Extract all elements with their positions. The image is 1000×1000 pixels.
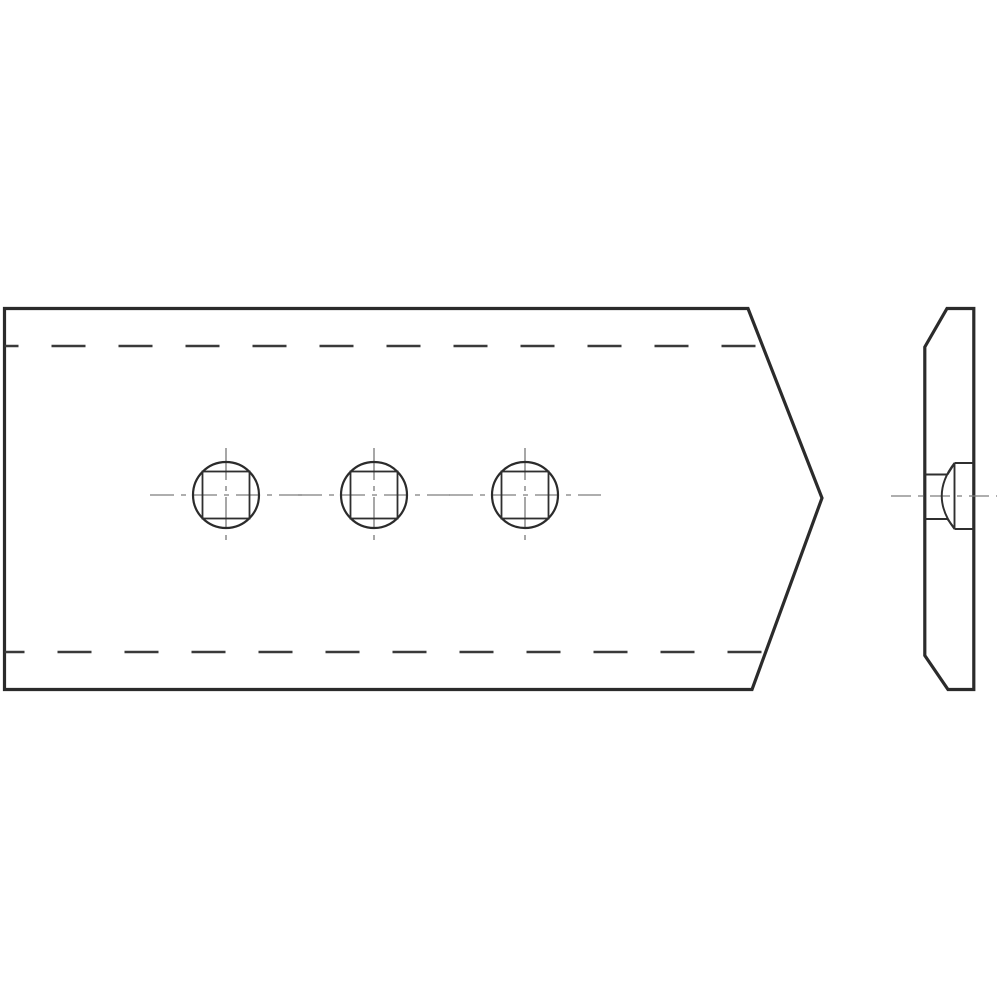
drawing-svg bbox=[0, 0, 1000, 1000]
side-view-outline bbox=[925, 309, 974, 690]
technical-drawing-canvas bbox=[0, 0, 1000, 1000]
front-view-outline bbox=[5, 309, 823, 690]
